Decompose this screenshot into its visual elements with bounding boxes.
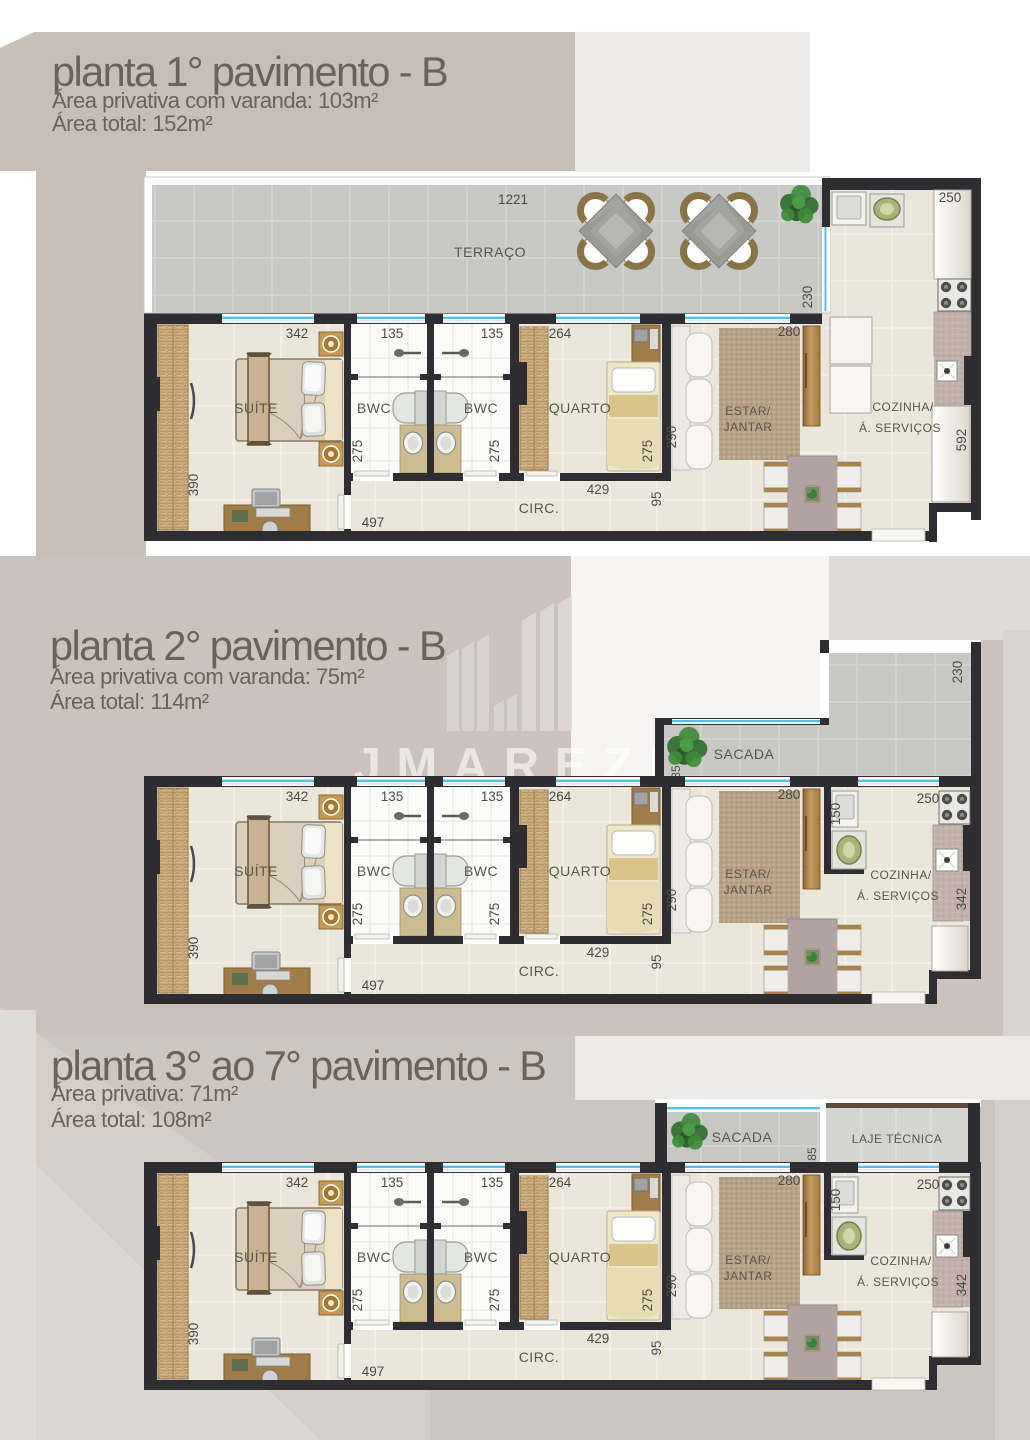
svg-text:95: 95 — [649, 1340, 664, 1355]
svg-text:85: 85 — [805, 1147, 819, 1161]
svg-text:SACADA: SACADA — [712, 1129, 773, 1145]
svg-text:1221: 1221 — [498, 192, 528, 207]
svg-text:CIRC.: CIRC. — [519, 963, 560, 979]
svg-text:BWC: BWC — [357, 400, 391, 416]
svg-text:497: 497 — [362, 978, 385, 993]
svg-text:TERRAÇO: TERRAÇO — [454, 244, 526, 260]
svg-text:497: 497 — [362, 1364, 385, 1379]
svg-text:275: 275 — [640, 440, 655, 463]
svg-text:135: 135 — [381, 1175, 404, 1190]
svg-text:Área privativa com varanda: 10: Área privativa com varanda: 103m² — [52, 88, 378, 113]
svg-text:264: 264 — [549, 1175, 572, 1190]
svg-text:230: 230 — [800, 286, 815, 309]
svg-text:COZINHA/: COZINHA/ — [870, 868, 932, 882]
svg-text:planta 2° pavimento - B: planta 2° pavimento - B — [50, 622, 445, 669]
svg-text:264: 264 — [549, 326, 572, 341]
svg-text:390: 390 — [186, 1323, 201, 1346]
svg-text:230: 230 — [950, 661, 965, 684]
svg-text:275: 275 — [350, 903, 365, 926]
svg-text:429: 429 — [587, 1331, 610, 1346]
svg-text:COZINHA/: COZINHA/ — [872, 400, 934, 414]
svg-text:SUÍTE: SUÍTE — [234, 400, 278, 416]
svg-text:275: 275 — [640, 1289, 655, 1312]
svg-text:275: 275 — [487, 903, 502, 926]
svg-text:135: 135 — [381, 326, 404, 341]
svg-text:SACADA: SACADA — [714, 746, 775, 762]
svg-text:290: 290 — [664, 1275, 679, 1298]
svg-text:JANTAR: JANTAR — [724, 420, 773, 434]
svg-text:135: 135 — [481, 1175, 504, 1190]
svg-text:ESTAR/: ESTAR/ — [725, 867, 771, 881]
svg-text:264: 264 — [549, 789, 572, 804]
svg-text:150: 150 — [828, 803, 843, 826]
svg-text:95: 95 — [649, 954, 664, 969]
svg-text:Área total: 152m²: Área total: 152m² — [52, 111, 212, 136]
svg-text:JANTAR: JANTAR — [724, 883, 773, 897]
svg-text:CIRC.: CIRC. — [519, 1349, 560, 1365]
svg-text:275: 275 — [350, 1289, 365, 1312]
svg-text:Á. SERVIÇOS: Á. SERVIÇOS — [859, 420, 941, 435]
svg-text:BWC: BWC — [357, 863, 391, 879]
svg-text:275: 275 — [487, 1289, 502, 1312]
svg-text:390: 390 — [186, 474, 201, 497]
svg-text:429: 429 — [587, 945, 610, 960]
svg-text:95: 95 — [649, 491, 664, 506]
svg-text:497: 497 — [362, 515, 385, 530]
svg-text:390: 390 — [186, 937, 201, 960]
svg-text:ESTAR/: ESTAR/ — [725, 404, 771, 418]
svg-text:QUARTO: QUARTO — [549, 400, 611, 416]
svg-text:275: 275 — [350, 440, 365, 463]
svg-text:135: 135 — [381, 789, 404, 804]
svg-text:290: 290 — [664, 889, 679, 912]
svg-text:LAJE TÉCNICA: LAJE TÉCNICA — [852, 1131, 942, 1146]
svg-text:CIRC.: CIRC. — [519, 500, 560, 516]
svg-text:QUARTO: QUARTO — [549, 863, 611, 879]
svg-text:COZINHA/: COZINHA/ — [870, 1254, 932, 1268]
svg-text:150: 150 — [828, 1189, 843, 1212]
svg-text:135: 135 — [481, 789, 504, 804]
svg-text:JANTAR: JANTAR — [724, 1269, 773, 1283]
svg-text:ESTAR/: ESTAR/ — [725, 1253, 771, 1267]
svg-text:QUARTO: QUARTO — [549, 1249, 611, 1265]
svg-text:342: 342 — [286, 326, 309, 341]
svg-text:592: 592 — [954, 429, 969, 452]
svg-text:280: 280 — [778, 787, 801, 802]
svg-text:250: 250 — [917, 1177, 940, 1192]
svg-text:Área total: 108m²: Área total: 108m² — [51, 1107, 211, 1132]
svg-text:SUÍTE: SUÍTE — [234, 863, 278, 879]
svg-text:BWC: BWC — [357, 1249, 391, 1265]
svg-text:Área privativa: 71m²: Área privativa: 71m² — [51, 1081, 238, 1106]
svg-text:250: 250 — [939, 190, 962, 205]
svg-text:275: 275 — [640, 903, 655, 926]
svg-text:SUÍTE: SUÍTE — [234, 1249, 278, 1265]
svg-text:290: 290 — [664, 426, 679, 449]
svg-text:429: 429 — [587, 482, 610, 497]
svg-text:342: 342 — [954, 1274, 969, 1297]
svg-text:135: 135 — [481, 326, 504, 341]
svg-text:280: 280 — [778, 324, 801, 339]
svg-text:Área total: 114m²: Área total: 114m² — [50, 689, 209, 714]
svg-text:275: 275 — [487, 440, 502, 463]
svg-text:BWC: BWC — [464, 400, 498, 416]
svg-text:Á. SERVIÇOS: Á. SERVIÇOS — [857, 888, 939, 903]
svg-text:BWC: BWC — [464, 1249, 498, 1265]
svg-text:BWC: BWC — [464, 863, 498, 879]
svg-text:280: 280 — [778, 1173, 801, 1188]
svg-text:Á. SERVIÇOS: Á. SERVIÇOS — [857, 1274, 939, 1289]
svg-text:Área privativa com varanda: 75: Área privativa com varanda: 75m² — [50, 664, 364, 689]
svg-text:342: 342 — [954, 888, 969, 911]
svg-text:342: 342 — [286, 1175, 309, 1190]
svg-text:342: 342 — [286, 789, 309, 804]
svg-text:250: 250 — [917, 791, 940, 806]
